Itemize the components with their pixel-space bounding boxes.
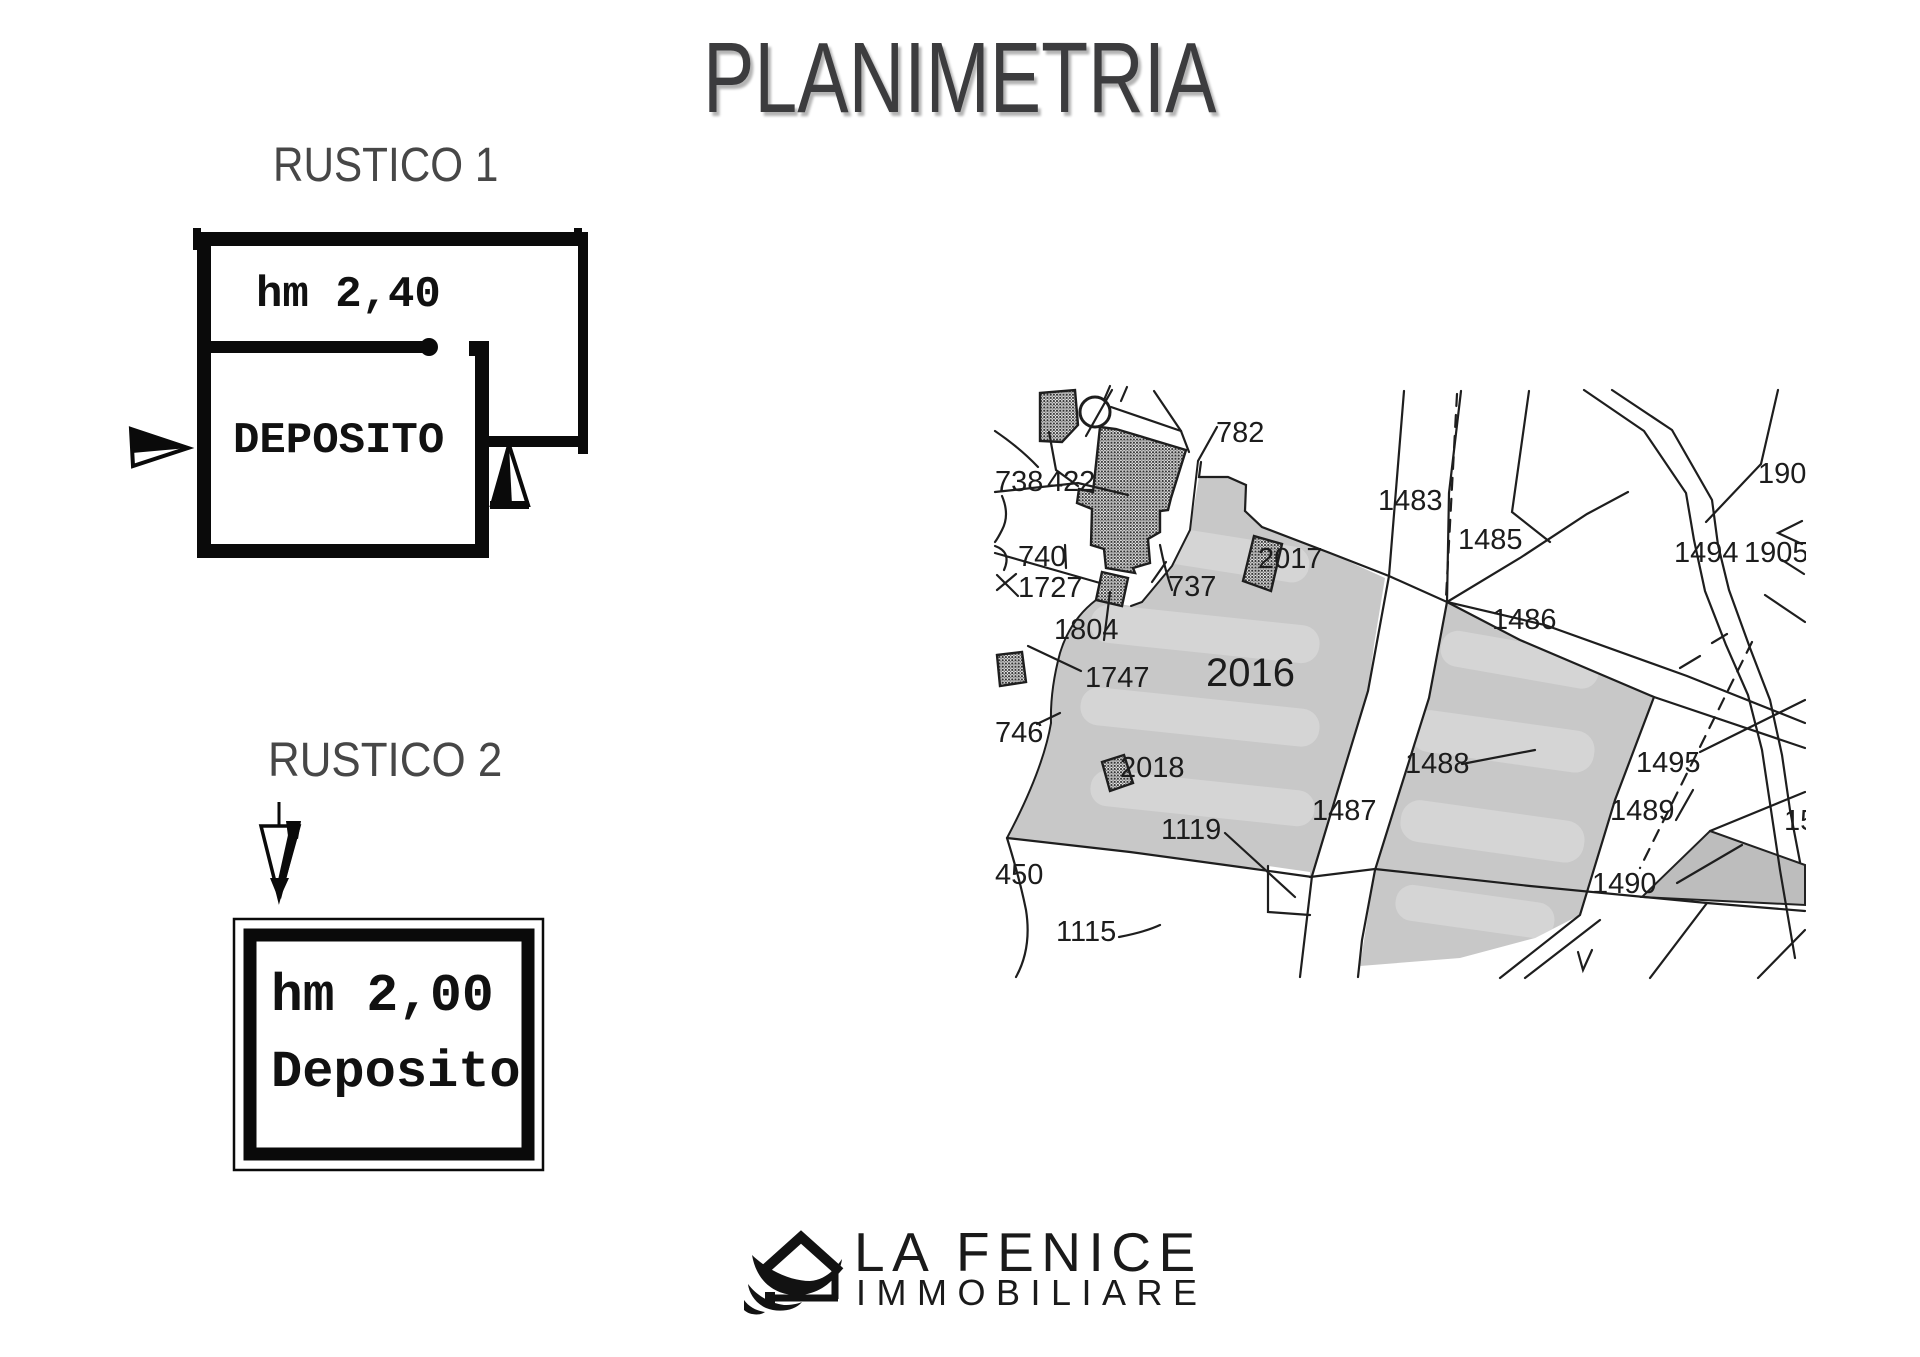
svg-text:1494: 1494	[1674, 537, 1739, 569]
svg-text:1483: 1483	[1378, 485, 1443, 517]
svg-text:1487: 1487	[1312, 795, 1377, 827]
svg-text:2018: 2018	[1120, 752, 1185, 784]
svg-text:1115: 1115	[1056, 916, 1116, 948]
svg-text:738: 738	[995, 466, 1043, 498]
svg-text:hm 2,00: hm 2,00	[271, 966, 494, 1026]
svg-text:1905: 1905	[1744, 537, 1806, 569]
svg-text:450: 450	[995, 859, 1043, 891]
svg-text:1485: 1485	[1458, 524, 1523, 556]
svg-text:hm 2,40: hm 2,40	[256, 270, 441, 320]
svg-text:1804: 1804	[1054, 614, 1119, 646]
svg-text:DEPOSITO: DEPOSITO	[233, 416, 444, 466]
svg-text:1495: 1495	[1636, 747, 1701, 779]
svg-text:1489: 1489	[1610, 795, 1675, 827]
svg-text:1490: 1490	[1592, 868, 1657, 900]
svg-text:737: 737	[1168, 571, 1216, 603]
svg-text:422: 422	[1047, 466, 1095, 498]
svg-text:1486: 1486	[1492, 604, 1557, 636]
svg-text:1119: 1119	[1161, 814, 1221, 846]
svg-text:740: 740	[1018, 541, 1066, 573]
svg-text:782: 782	[1216, 417, 1264, 449]
svg-text:1488: 1488	[1405, 748, 1470, 780]
svg-text:1727: 1727	[1018, 572, 1083, 604]
svg-text:15: 15	[1784, 805, 1806, 837]
svg-text:746: 746	[995, 717, 1043, 749]
svg-text:1747: 1747	[1085, 662, 1150, 694]
svg-text:190: 190	[1758, 458, 1806, 490]
svg-text:2016: 2016	[1206, 651, 1295, 695]
svg-text:2017: 2017	[1258, 543, 1323, 575]
svg-text:Deposito: Deposito	[271, 1043, 521, 1102]
